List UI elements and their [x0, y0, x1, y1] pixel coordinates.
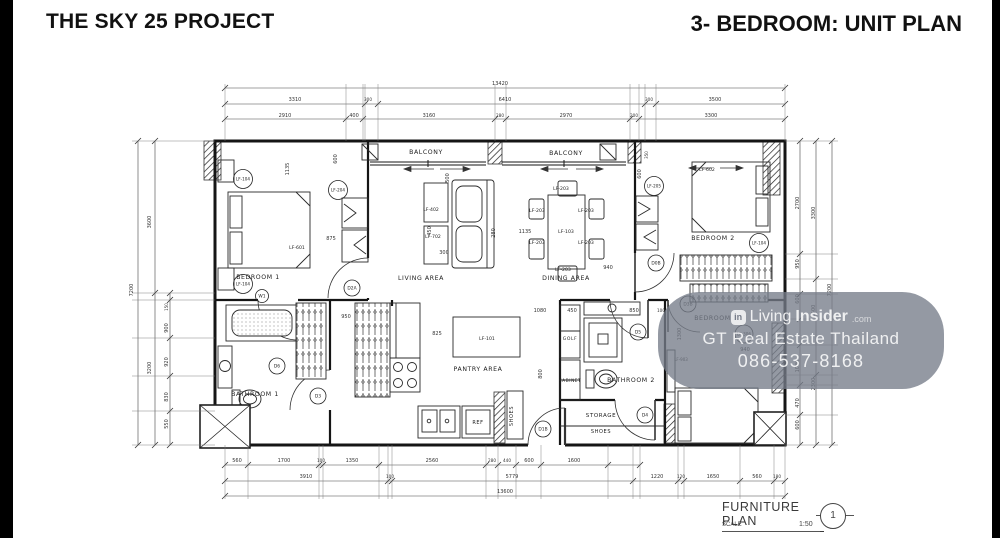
dim-label: 5779 [506, 474, 519, 480]
service-shafts [200, 405, 786, 448]
brand-prefix: Living [750, 309, 792, 325]
dim-label: 100 [317, 458, 325, 463]
room-label: BALCONY [409, 149, 443, 156]
dim-label: 440 [503, 458, 511, 463]
dim-label: 825 [432, 331, 442, 337]
shower [584, 318, 622, 362]
bed-1 [228, 192, 310, 268]
dim-label: 350 [644, 151, 649, 159]
furniture-tag: LF-203 [555, 267, 571, 273]
dim-label: 3310 [289, 97, 302, 103]
dim-label: 950 [795, 259, 801, 269]
room-label: LIVING AREA [398, 275, 444, 282]
watermark-phone: 086-537-8168 [738, 351, 865, 372]
door-ref: D1B [538, 427, 547, 433]
room-label: CABINET [559, 378, 581, 383]
dim-label: 1600 [568, 458, 581, 464]
dim-label: 3300 [705, 113, 718, 119]
dim-label: 1220 [651, 474, 664, 480]
dim-label: 450 [567, 308, 577, 314]
dim-label: 1135 [285, 163, 291, 176]
dim-label: 280 [488, 458, 496, 463]
console-1 [424, 183, 448, 222]
dim-label: 920 [164, 357, 170, 367]
dim-label: 2970 [560, 113, 573, 119]
page: THE SKY 25 PROJECT 3- BEDROOM: UNIT PLAN [0, 0, 1000, 538]
room-label: GOLF [563, 336, 578, 342]
dim-label: 470 [795, 398, 801, 408]
dim-label: 2700 [795, 197, 801, 210]
dim-label: 3200 [147, 362, 153, 375]
dim-label: 1650 [707, 474, 720, 480]
dim-label: 3600 [147, 216, 153, 229]
dim-label: 450 [427, 226, 433, 236]
dim-label: 600 [524, 458, 534, 464]
furniture-ref: LF-104 [236, 177, 250, 182]
walkin-closet [355, 303, 390, 397]
dim-label: 150 [164, 303, 169, 311]
wardrobe-bedroom2 [680, 255, 772, 281]
title-block-rule [722, 531, 820, 532]
dim-label: 300 [645, 97, 653, 102]
dim-label: 2910 [279, 113, 292, 119]
scale-value: 1:50 [799, 521, 813, 528]
dim-label: 1700 [278, 458, 291, 464]
dim-label: 560 [232, 458, 242, 464]
door-ref: D0B [651, 261, 660, 267]
closet-bath1 [296, 303, 326, 379]
dim-label: 900 [164, 323, 170, 333]
dim-label: 13600 [497, 489, 513, 495]
furniture-tag: LF-602 [699, 167, 715, 173]
dim-label: 2560 [426, 458, 439, 464]
dim-label: 600 [333, 154, 339, 164]
door-ref: W1 [258, 294, 265, 300]
furniture-tag: LF-203 [578, 240, 594, 246]
dim-label: 875 [326, 236, 336, 242]
dim-label: 200 [630, 113, 638, 118]
dim-label: 3910 [300, 474, 313, 480]
furniture-tag: LF-101 [479, 336, 495, 342]
dim-label: 1080 [534, 308, 547, 314]
furniture-tag: LF-203 [553, 186, 569, 192]
door-ref: D4 [642, 413, 648, 419]
furniture-tag: LF-203 [529, 208, 545, 214]
door-ref: D5 [635, 330, 641, 336]
dim-label: 7200 [129, 284, 135, 297]
furniture-tag: LF-203 [529, 240, 545, 246]
dim-label: 600 [795, 420, 801, 430]
detail-number-bubble: 1 [820, 503, 846, 529]
sink-counter [418, 406, 460, 438]
dim-label: 850 [629, 308, 639, 314]
floor-plan-drawing: BALCONYBALCONYBEDROOM 1LIVING AREADINING… [0, 0, 1000, 538]
dim-label: 3160 [423, 113, 436, 119]
furniture-tag: LF-601 [289, 245, 305, 251]
room-label: DINING AREA [542, 275, 590, 282]
room-label: BALCONY [549, 150, 583, 157]
watermark: in LivingInsider .com GT Real Estate Tha… [658, 292, 944, 389]
dim-label: 300 [364, 97, 372, 102]
dim-label: 830 [164, 392, 170, 402]
dim-label: 6410 [499, 97, 512, 103]
furniture-ref: LF-204 [331, 188, 345, 193]
watermark-brand: in LivingInsider .com [731, 309, 872, 325]
dim-label: 600 [637, 169, 643, 179]
dim-label: 3300 [811, 207, 817, 220]
livinginsider-logo-icon: in [731, 310, 746, 325]
dim-label: 100 [386, 474, 394, 479]
brand-bold: Insider [795, 309, 847, 325]
furniture-tag: LF-203 [578, 208, 594, 214]
door-ref: D2A [347, 286, 356, 292]
dim-label: 500 [445, 173, 451, 183]
room-label: SHOES [591, 429, 611, 435]
room-label: PANTRY AREA [454, 366, 503, 373]
dim-label: 280 [491, 228, 497, 238]
dim-label: 280 [496, 113, 504, 118]
room-label: BEDROOM 2 [691, 235, 735, 242]
closet-bedroom1 [342, 198, 368, 228]
dim-label: 13420 [492, 81, 508, 87]
room-label: STORAGE [586, 413, 616, 419]
room-label: BATHROOM 1 [231, 391, 279, 398]
dim-label: 1350 [346, 458, 359, 464]
furniture-ref: LF-104 [236, 282, 250, 287]
bed-3 [675, 388, 758, 443]
dim-label: 950 [341, 314, 351, 320]
dim-label: 800 [538, 369, 544, 379]
dim-label: 560 [752, 474, 762, 480]
watermark-agency: GT Real Estate Thailand [702, 329, 899, 349]
dim-label: 400 [349, 113, 359, 119]
furniture-tag: LF-402 [423, 207, 439, 213]
room-label: BEDROOM 1 [236, 274, 280, 281]
door-ref: D3 [315, 394, 321, 400]
brand-suffix: .com [852, 315, 872, 325]
door-ref: D6 [274, 364, 280, 370]
furniture-tag: LF-103 [558, 229, 574, 235]
sofa [452, 180, 494, 268]
stove [390, 358, 420, 392]
dim-label: 3500 [709, 97, 722, 103]
dim-label: 550 [164, 419, 170, 429]
scale-label: SCALE [722, 522, 742, 528]
room-label: SHOES [509, 406, 515, 426]
furniture-ref: LF-205 [647, 184, 661, 189]
dim-label: 1135 [519, 229, 532, 235]
dim-label: 120 [677, 474, 685, 479]
furniture-ref: LF-104 [752, 241, 766, 246]
dim-label: 940 [603, 265, 613, 271]
dim-label: 300 [439, 250, 449, 256]
room-label: REF [472, 420, 483, 426]
room-label: BATHROOM 2 [607, 377, 655, 384]
dim-label: 180 [773, 474, 781, 479]
